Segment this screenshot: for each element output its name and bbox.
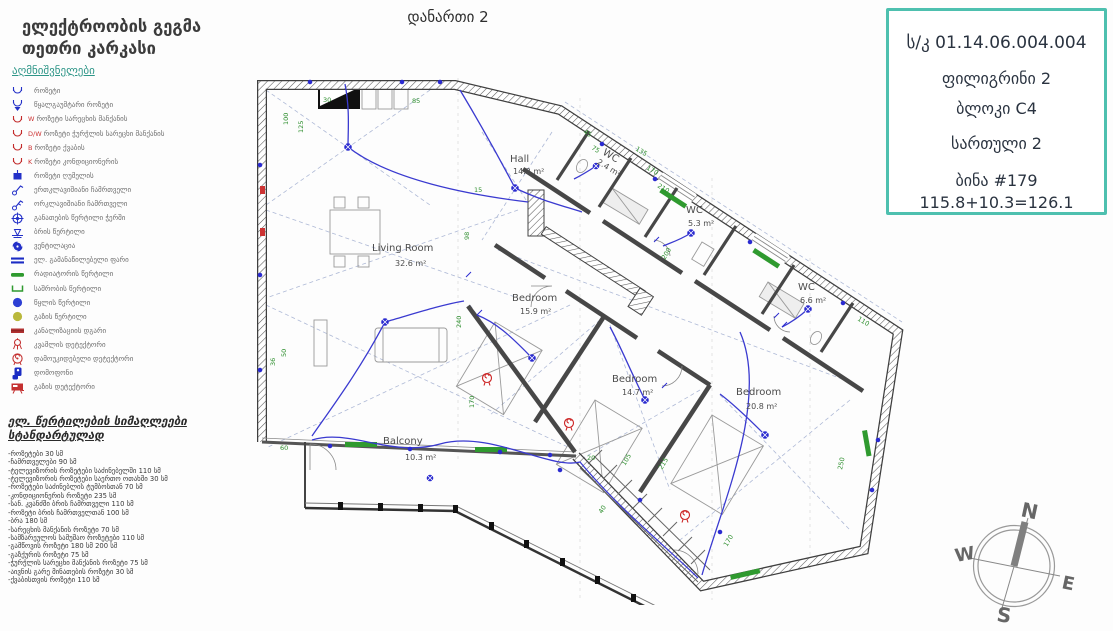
svg-text:105: 105 bbox=[620, 452, 633, 467]
legend-row: ელ. გამანაწილებელი ფარი bbox=[10, 255, 250, 266]
standards-header: ელ. წერტილების სიმაღლეები სტანდარტულად bbox=[8, 414, 248, 443]
svg-text:20.8 m²: 20.8 m² bbox=[746, 402, 777, 411]
svg-text:125: 125 bbox=[297, 121, 305, 133]
title-line-2: თეთრი კარკასი bbox=[22, 38, 201, 60]
svg-text:50: 50 bbox=[280, 349, 288, 357]
stairs bbox=[580, 450, 710, 582]
standards-item: -ჩამრთველები 90 სმ bbox=[8, 459, 248, 466]
legend-row: როზეტი ღუმელის bbox=[10, 171, 250, 182]
standards-item: -გაზქურის როზეტი 75 სმ bbox=[8, 552, 248, 559]
legend-row: დომოფონი bbox=[10, 368, 250, 379]
furniture bbox=[314, 87, 824, 514]
title-line-1: ელექტროობის გეგმა bbox=[22, 16, 201, 38]
room-label-bedroom-3: Bedroom bbox=[736, 387, 781, 398]
compass-needle bbox=[1014, 522, 1025, 566]
room-label-bedroom-2: Bedroom bbox=[612, 374, 657, 385]
svg-text:32.6 m²: 32.6 m² bbox=[395, 259, 426, 268]
svg-text:20: 20 bbox=[587, 454, 595, 462]
area-sum: 115.8+10.3=126.1 bbox=[889, 193, 1104, 212]
legend-header: აღმნიშვნელები bbox=[12, 64, 250, 77]
intercom-icon bbox=[10, 367, 34, 380]
legend-row: წყალგაუმტარი როზეტი bbox=[10, 100, 250, 111]
exterior-walls bbox=[262, 85, 898, 586]
legend-row: ვენტილაცია bbox=[10, 241, 250, 252]
room-label-bedroom-1: Bedroom bbox=[512, 293, 557, 304]
legend-row: D/W როზეტი ჭურჭლის სარეცხი მანქანის bbox=[10, 128, 250, 139]
compass-w: W bbox=[953, 543, 976, 567]
standards-item: -ჭურჭლის სარეცხი მანქანის როზეტი 75 სმ bbox=[8, 560, 248, 567]
svg-text:5.3 m²: 5.3 m² bbox=[688, 219, 714, 228]
svg-text:85: 85 bbox=[412, 97, 420, 105]
ventilation-icon bbox=[10, 240, 34, 253]
svg-text:15.9 m²: 15.9 m² bbox=[520, 307, 551, 316]
room-label-balcony: Balcony bbox=[383, 436, 423, 447]
svg-text:40: 40 bbox=[597, 504, 608, 515]
distribution-board-icon bbox=[10, 254, 34, 267]
room-label-hall: Hall bbox=[510, 154, 529, 165]
single-switch-icon bbox=[10, 183, 34, 196]
svg-text:170: 170 bbox=[722, 533, 735, 548]
legend-row: წყლის წერტილი bbox=[10, 297, 250, 308]
standards-item: -სარეცხის მანქანის როზეტი 70 სმ bbox=[8, 527, 248, 534]
compass-e: E bbox=[1060, 572, 1076, 595]
legend-row: დამოუკიდებელი დეტექტორი bbox=[10, 354, 250, 365]
legend-row: ერთკლავიშიანი ჩამრთველი bbox=[10, 185, 250, 196]
legend-row: ბრის წერტილი bbox=[10, 227, 250, 238]
svg-text:100: 100 bbox=[282, 113, 290, 125]
standards-item: -ტელევიზორის როზეტები საერთო ოთახში 30 ს… bbox=[8, 476, 248, 483]
svg-text:15: 15 bbox=[474, 186, 482, 194]
water-point-icon bbox=[10, 296, 34, 309]
block-label: ბლოკი C4 bbox=[889, 99, 1104, 118]
cadastral-code: ს/კ 01.14.06.004.004 bbox=[889, 33, 1104, 53]
legend: აღმნიშვნელები როზეტი წყალგაუმტარი როზეტი… bbox=[10, 64, 250, 396]
standards-item: -ტელევიზორის როზეტები საძინებელში 110 სმ bbox=[8, 468, 248, 475]
legend-row: K როზეტი კონდიციონერის bbox=[10, 156, 250, 167]
legend-row: კვამლის დეტექტორი bbox=[10, 340, 250, 351]
annex-label: დანართი 2 bbox=[378, 8, 518, 26]
svg-text:250: 250 bbox=[836, 457, 846, 471]
sheet-title: ელექტროობის გეგმა თეთრი კარკასი bbox=[22, 16, 201, 61]
svg-text:200: 200 bbox=[660, 246, 673, 261]
smoke-detector-icon bbox=[10, 338, 34, 351]
waterproof-socket-icon bbox=[10, 99, 34, 112]
standards-item: -გამწოვის როზეტი 180 სმ 200 სმ bbox=[8, 543, 248, 550]
standards-item: -კონდიციონერის როზეტი 235 სმ bbox=[8, 493, 248, 500]
legend-row: ორკლავიშიანი ჩამრთველი bbox=[10, 199, 250, 210]
svg-text:98: 98 bbox=[463, 232, 471, 240]
room-label-wc-2: WC bbox=[686, 205, 703, 216]
room-label-living: Living Room bbox=[372, 243, 433, 254]
standards-item: -აივნის გარე მინათების როზეტი 30 სმ bbox=[8, 569, 248, 576]
standard-heights-list: ელ. წერტილების სიმაღლეები სტანდარტულად -… bbox=[8, 414, 248, 586]
svg-text:14.7 m²: 14.7 m² bbox=[622, 388, 653, 397]
compass-rose: N W E S bbox=[948, 496, 1088, 626]
socket-icon bbox=[10, 85, 34, 98]
apartment-info-box: ს/კ 01.14.06.004.004 ფილიგრინი 2 ბლოკი C… bbox=[886, 8, 1107, 215]
standards-item: -როზეტები საძინებლის ტუმბოსთან 70 სმ bbox=[8, 484, 248, 491]
legend-row: გაზის წერტილი bbox=[10, 312, 250, 323]
ceiling-light-icon bbox=[10, 212, 34, 225]
gas-detector-icon bbox=[10, 381, 34, 394]
svg-text:170: 170 bbox=[468, 396, 476, 408]
legend-row: W როზეტი სარეცხის მანქანის bbox=[10, 114, 250, 125]
standards-item: -როზეტი ბრის ჩამრთველთან 100 სმ bbox=[8, 510, 248, 517]
double-switch-icon bbox=[10, 198, 34, 211]
svg-text:75: 75 bbox=[590, 144, 601, 155]
floor-plan-drawing: 30 85 100 125 15 50 36 98 240 170 60 135… bbox=[250, 70, 910, 605]
legend-row: B როზეტი ქვაბის bbox=[10, 142, 250, 153]
standards-item: -სან. კვანძში ბრის ჩამრთველი 110 სმ bbox=[8, 501, 248, 508]
standards-item: -სამზარეულოს სამუშაო როზეტები 110 სმ bbox=[8, 535, 248, 542]
towel-dryer-icon bbox=[10, 282, 34, 295]
legend-row: განათების წერტილი ჭერში bbox=[10, 213, 250, 224]
room-label-wc-3: WC bbox=[798, 282, 815, 293]
standards-item: -ქვაბისთვის როზეტი 110 სმ bbox=[8, 577, 248, 584]
room-labels: Hall 14.2 m² Living Room 32.6 m² Bedroom… bbox=[372, 147, 826, 462]
apartment-number: ბინა #179 bbox=[889, 171, 1104, 190]
project-name: ფილიგრინი 2 bbox=[889, 69, 1104, 88]
compass-s: S bbox=[995, 602, 1013, 626]
dimension-labels: 30 85 100 125 15 50 36 98 240 170 60 135… bbox=[269, 96, 871, 548]
standards-item: -როზეტები 30 სმ bbox=[8, 451, 248, 458]
svg-text:36: 36 bbox=[269, 358, 277, 366]
svg-text:60: 60 bbox=[280, 444, 288, 452]
svg-text:240: 240 bbox=[455, 316, 463, 328]
oven-socket-icon bbox=[10, 169, 34, 182]
sewage-riser-icon bbox=[10, 324, 34, 337]
svg-text:6.6 m²: 6.6 m² bbox=[800, 296, 826, 305]
legend-row: გაზის დეტექტორი bbox=[10, 382, 250, 393]
standards-item: -ბრა 180 სმ bbox=[8, 518, 248, 525]
gas-point-icon bbox=[10, 310, 34, 323]
independent-detector-icon bbox=[10, 353, 34, 366]
compass-n: N bbox=[1019, 497, 1040, 524]
svg-text:10.3 m²: 10.3 m² bbox=[405, 453, 436, 462]
legend-row: კანალიზაციის დგარი bbox=[10, 326, 250, 337]
floor-label: სართული 2 bbox=[889, 134, 1104, 153]
legend-row: რადიატორის წერტილი bbox=[10, 269, 250, 280]
radiator-icon bbox=[10, 268, 34, 281]
svg-text:14.2 m²: 14.2 m² bbox=[513, 167, 544, 176]
wiring-curves bbox=[312, 84, 808, 578]
legend-row: როზეტი bbox=[10, 86, 250, 97]
sconce-icon bbox=[10, 226, 34, 239]
electrical-plan-sheet: { "title": {"line1": "ელექტროობის გეგმა"… bbox=[0, 0, 1113, 631]
svg-text:30: 30 bbox=[323, 96, 331, 104]
legend-row: საშრობის წერტილი bbox=[10, 283, 250, 294]
